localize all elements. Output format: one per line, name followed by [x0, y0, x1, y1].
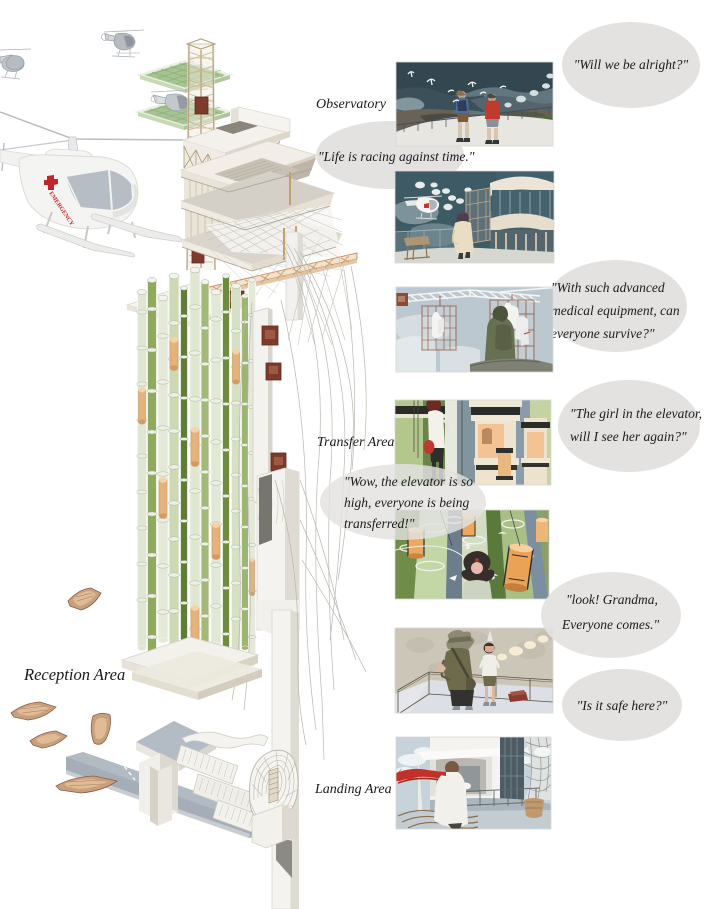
- svg-text:everyone survive?": everyone survive?": [551, 326, 655, 341]
- svg-text:Reception Area: Reception Area: [23, 665, 125, 684]
- svg-text:"Wow, the elevator is so: "Wow, the elevator is so: [344, 474, 473, 489]
- svg-text:medical equipment, can: medical equipment, can: [551, 303, 680, 318]
- svg-text:Landing Area: Landing Area: [314, 782, 392, 797]
- svg-text:Transfer Area: Transfer Area: [317, 435, 394, 450]
- svg-text:"With such advanced: "With such advanced: [551, 280, 665, 295]
- svg-text:Observatory: Observatory: [316, 97, 387, 112]
- svg-text:Everyone comes.": Everyone comes.": [561, 617, 659, 632]
- svg-text:"The girl in the elevator,: "The girl in the elevator,: [570, 406, 702, 421]
- svg-text:"look! Grandma,: "look! Grandma,: [566, 592, 658, 607]
- svg-text:high, everyone is being: high, everyone is being: [344, 495, 469, 510]
- svg-text:"Will we be alright?": "Will we be alright?": [574, 57, 689, 72]
- svg-text:"Life is racing against time.": "Life is racing against time.": [318, 149, 475, 164]
- svg-text:transferred!": transferred!": [344, 516, 415, 531]
- svg-text:"Is it safe here?": "Is it safe here?": [577, 698, 668, 713]
- svg-text:will I see her again?": will I see her again?": [570, 429, 687, 444]
